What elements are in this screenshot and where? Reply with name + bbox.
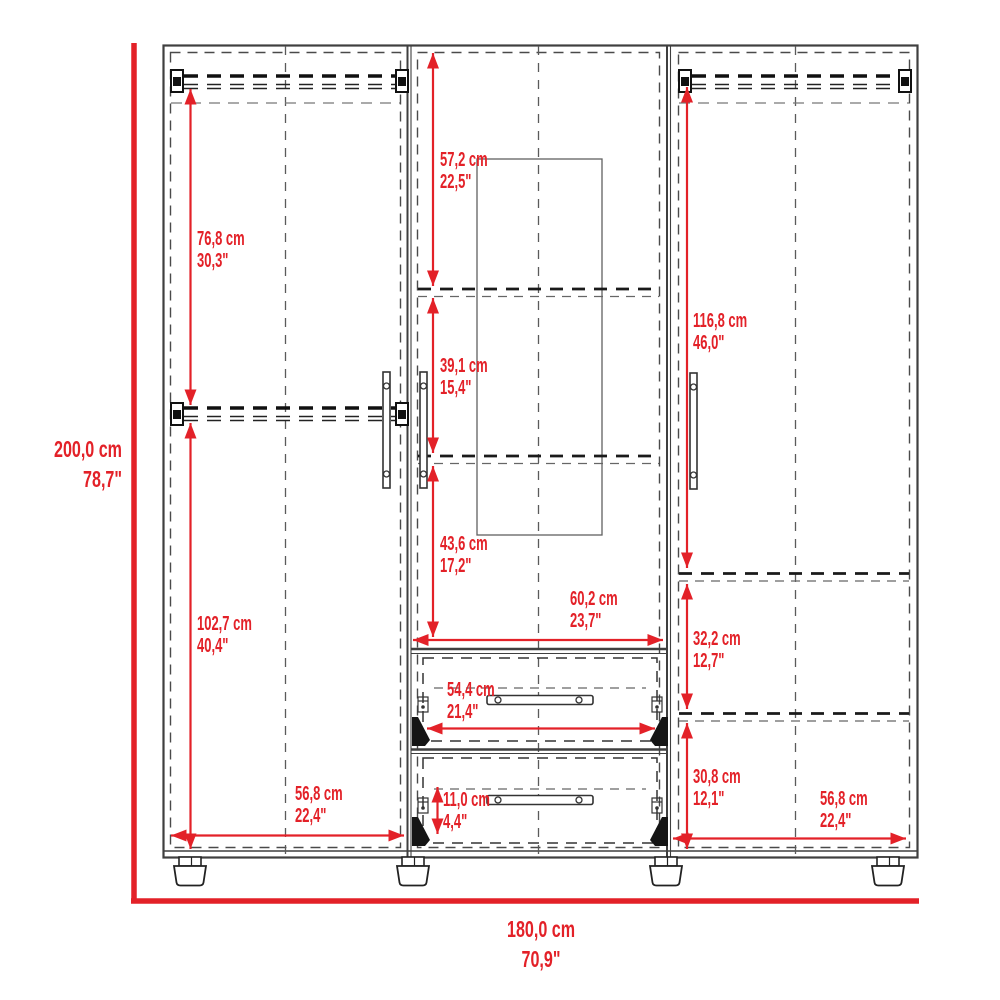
diagram-canvas: 200,0 cm 78,7" 180,0 cm 70,9" <box>0 0 1000 1000</box>
dim-label-cm: 56,8 cm <box>295 782 343 805</box>
dim-label-in: 30,3" <box>197 249 228 272</box>
dim-label-in: 46,0" <box>693 331 724 354</box>
left-door-handle <box>383 372 390 488</box>
dim-label-cm: 11,0 cm <box>443 788 490 811</box>
rod-bracket-icon <box>396 70 408 92</box>
rod-bracket-icon <box>679 70 691 92</box>
right-door-handle <box>690 373 697 489</box>
dim-label-in: 22,4" <box>820 809 851 832</box>
dim-label-cm: 32,2 cm <box>693 627 741 650</box>
dim-label-cm: 43,6 cm <box>440 532 488 555</box>
dim-label-in: 15,4" <box>440 376 471 399</box>
foot-icon <box>872 857 904 886</box>
rod-bracket-icon <box>899 70 911 92</box>
overall-width-in: 70,9" <box>522 947 561 972</box>
foot-icon <box>397 857 429 886</box>
dim-label-in: 23,7" <box>570 609 601 632</box>
foot-icon <box>650 857 682 886</box>
middle-door-handle <box>420 372 427 488</box>
dim-label-cm: 57,2 cm <box>440 148 488 171</box>
dim-label-in: 17,2" <box>440 554 471 577</box>
overall-height-cm: 200,0 cm <box>54 437 122 462</box>
drawer-1-handle <box>487 696 593 705</box>
overall-width-cm: 180,0 cm <box>507 917 575 942</box>
dim-label-in: 22,4" <box>295 804 326 827</box>
dim-label-cm: 76,8 cm <box>197 227 245 250</box>
dim-label-cm: 54,4 cm <box>447 678 495 701</box>
dim-label-cm: 39,1 cm <box>440 354 488 377</box>
rod-bracket-icon <box>171 403 183 425</box>
dim-label-cm: 30,8 cm <box>693 765 741 788</box>
dim-label-in: 4,4" <box>443 810 467 833</box>
background <box>0 0 1000 1000</box>
rod-bracket-icon <box>171 70 183 92</box>
dim-label-in: 22,5" <box>440 170 471 193</box>
dim-label-in: 40,4" <box>197 634 228 657</box>
rod-bracket-icon <box>396 403 408 425</box>
dim-label-cm: 60,2 cm <box>570 587 618 610</box>
dim-label-in: 12,1" <box>693 787 724 810</box>
dim-label-cm: 102,7 cm <box>197 612 252 635</box>
foot-icon <box>174 857 206 886</box>
dim-label-cm: 116,8 cm <box>693 309 747 332</box>
drawer-2-handle <box>487 796 593 805</box>
dim-label-cm: 56,8 cm <box>820 787 868 810</box>
overall-height-in: 78,7" <box>83 467 122 492</box>
dim-label-in: 12,7" <box>693 649 724 672</box>
dim-label-in: 21,4" <box>447 700 478 723</box>
wardrobe-dimension-diagram: 200,0 cm 78,7" 180,0 cm 70,9" <box>0 0 1000 1000</box>
